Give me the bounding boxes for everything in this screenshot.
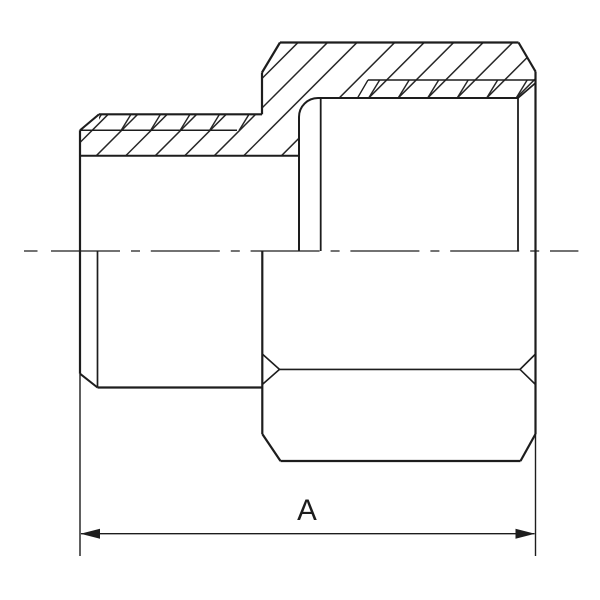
svg-text:A: A bbox=[297, 494, 317, 527]
